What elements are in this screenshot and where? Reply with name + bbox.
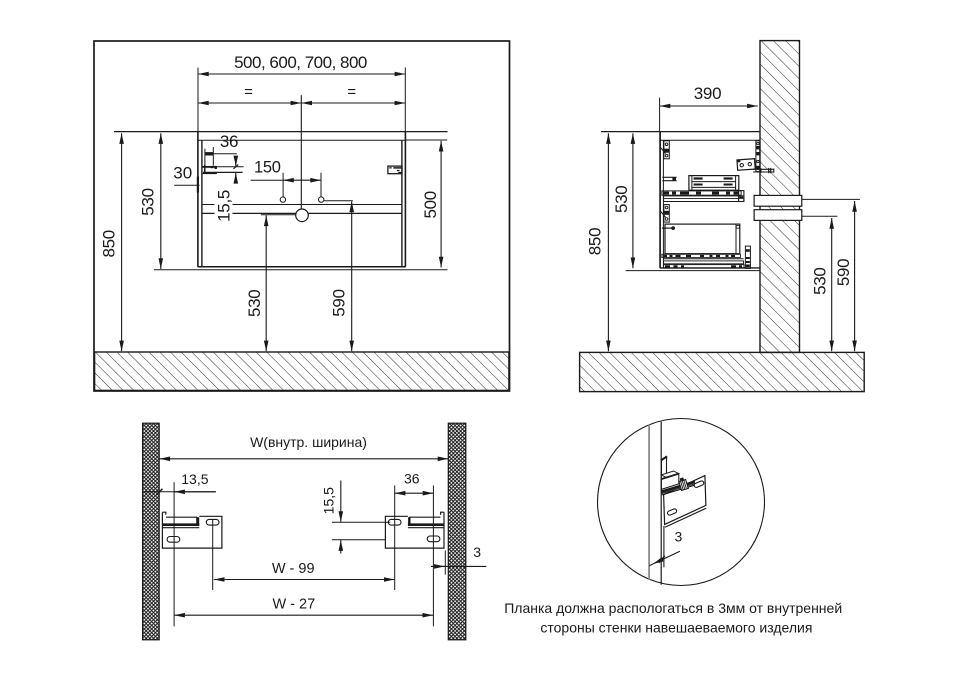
svg-text:530: 530: [612, 186, 631, 213]
svg-text:590: 590: [834, 259, 853, 286]
svg-text:W - 27: W - 27: [272, 596, 315, 612]
svg-text:стороны стенки навешаеваемого: стороны стенки навешаеваемого изделия: [540, 619, 812, 635]
svg-text:36: 36: [220, 132, 238, 151]
svg-text:=: =: [244, 84, 253, 101]
svg-text:500: 500: [421, 191, 440, 218]
svg-text:590: 590: [329, 289, 348, 316]
svg-text:390: 390: [694, 84, 721, 103]
svg-text:15,5: 15,5: [321, 487, 337, 514]
svg-text:30: 30: [173, 163, 192, 182]
svg-text:850: 850: [99, 230, 118, 257]
svg-text:13,5: 13,5: [181, 471, 208, 487]
svg-text:850: 850: [586, 228, 605, 255]
svg-text:530: 530: [139, 188, 158, 215]
svg-text:15,5: 15,5: [215, 190, 234, 222]
svg-text:530: 530: [811, 267, 830, 294]
svg-text:W(внутр. ширина): W(внутр. ширина): [250, 434, 367, 450]
svg-text:500, 600, 700, 800: 500, 600, 700, 800: [234, 53, 367, 72]
svg-text:W - 99: W - 99: [272, 561, 315, 577]
svg-text:3: 3: [473, 544, 481, 560]
svg-text:530: 530: [245, 290, 264, 317]
svg-text:150: 150: [254, 159, 281, 177]
svg-text:36: 36: [404, 470, 420, 486]
svg-text:=: =: [347, 84, 356, 101]
svg-text:Планка должна распологаться в: Планка должна распологаться в 3мм от вну…: [504, 600, 842, 616]
svg-text:3: 3: [675, 529, 683, 545]
